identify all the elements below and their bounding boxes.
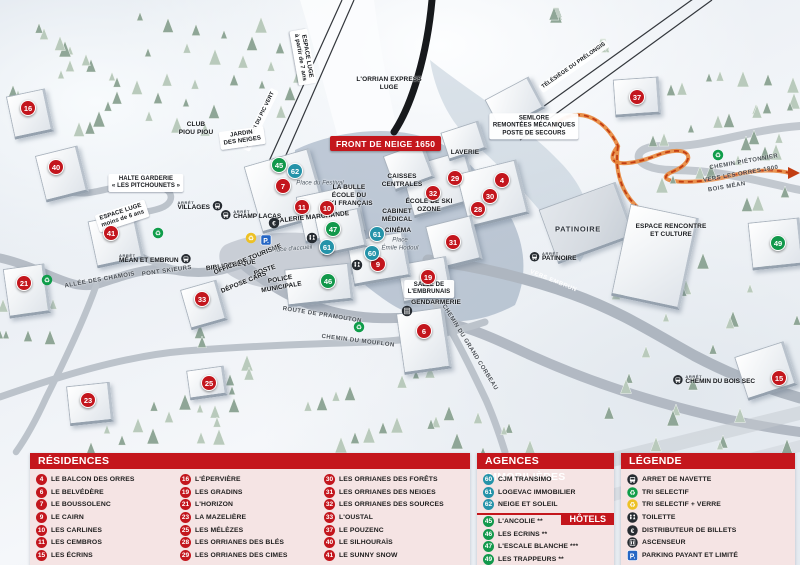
map-label: ESPACE RENCONTRE ET CULTURE — [636, 223, 707, 239]
legend-number-badge: 23 — [180, 512, 191, 523]
legend-number-badge: 47 — [483, 541, 494, 552]
map-marker-11: 11 — [294, 199, 310, 215]
legende-list: ARRET DE NAVETTE♻TRI SELECTIF♻TRI SELECT… — [621, 469, 795, 565]
legend-row: 15LES ÉCRINS — [36, 549, 176, 562]
recycle-yellow-icon: ♻ — [627, 499, 638, 510]
bus-stop-name: CHEMIN DU BOIS SEC — [685, 379, 755, 386]
legend-number-badge: 6 — [36, 487, 47, 498]
legend-label: LES TRAPPEURS ** — [498, 556, 564, 563]
legend-label: LES CARLINES — [51, 527, 102, 534]
legend-row: 11LES CEMBROS — [36, 536, 176, 549]
svg-text:♻: ♻ — [715, 151, 721, 159]
hotels-title: HÔTELS — [561, 513, 614, 525]
hotels-items: HÔTELS 45L'ANCOLIE **46LES ECRINS **47L'… — [477, 513, 614, 565]
map-marker-25: 25 — [201, 375, 217, 391]
legend-label: TRI SELECTIF + VERRE — [642, 501, 721, 508]
svg-text:P.: P. — [630, 553, 636, 560]
recycle-green-icon: ♻ — [354, 322, 365, 333]
bus-stop-patinoire: ARRÊTPATINOIRE — [530, 252, 577, 263]
residences-column: 16L'ÉPERVIÈRE19LES GRADINS21L'HORIZON23L… — [180, 473, 320, 562]
bus-icon — [181, 254, 191, 264]
map-marker-61: 61 — [369, 226, 385, 242]
legend-row: 4LE BALCON DES ORRES — [36, 473, 176, 486]
map-marker-40: 40 — [48, 159, 64, 175]
legend-row: 33L'OUSTAL — [324, 511, 464, 524]
residences-title: RÉSIDENCES — [30, 453, 470, 469]
legend-row: 61LOGEVAC IMMOBILIER — [483, 486, 608, 499]
svg-text:€: € — [272, 220, 276, 227]
map-marker-6: 6 — [416, 323, 432, 339]
map-marker-23: 23 — [80, 392, 96, 408]
bus-icon — [530, 252, 540, 262]
map-marker-47: 47 — [325, 221, 341, 237]
svg-text:P.: P. — [263, 238, 269, 245]
map-marker-10: 10 — [319, 200, 335, 216]
map-label: CINÉMA — [385, 227, 411, 235]
recycle-green-icon: ♻ — [42, 275, 53, 286]
legend-label: L'OUSTAL — [339, 514, 373, 521]
recycle-yellow-icon: ♻ — [246, 233, 257, 244]
bus-stop-name: VILLAGES — [177, 205, 210, 212]
legend-label: LES ECRINS ** — [498, 531, 547, 538]
legend-number-badge: 46 — [483, 529, 494, 540]
residences-panel: RÉSIDENCES 4LE BALCON DES ORRES6LE BELVÉ… — [30, 453, 470, 565]
legend-number-badge: 15 — [36, 550, 47, 561]
legend-row: 31LES ORRIANES DES NEIGES — [324, 486, 464, 499]
map-marker-49: 49 — [770, 235, 786, 251]
legend-label: LES ORRIANES DES BLÉS — [195, 539, 284, 546]
map-marker-4: 4 — [494, 172, 510, 188]
building — [3, 263, 52, 318]
agences-title: AGENCES IMMOBILIÈRES — [477, 453, 614, 469]
legend-row: ARRET DE NAVETTE — [627, 473, 789, 486]
map-marker-19: 19 — [420, 269, 436, 285]
agences-items: 60CJM TRANSIMO61LOGEVAC IMMOBILIER62NEIG… — [483, 473, 608, 511]
legend-number-badge: 7 — [36, 499, 47, 510]
parking-icon: P. — [627, 550, 638, 561]
legend-row: 23LA MAZELIÈRE — [180, 511, 320, 524]
legend-row: 62NEIGE ET SOLEIL — [483, 498, 608, 511]
legend-number-badge: 40 — [324, 537, 335, 548]
map-marker-62: 62 — [287, 163, 303, 179]
bus-icon — [221, 210, 231, 220]
map-marker-60: 60 — [364, 245, 380, 261]
bus-stop-name: MÉAN ET EMBRUN — [119, 258, 179, 265]
elevator-icon — [627, 537, 638, 548]
legend-label: LES ÉCRINS — [51, 552, 93, 559]
legend-label: LE SUNNY SNOW — [339, 552, 398, 559]
legend-label: CJM TRANSIMO — [498, 476, 552, 483]
legend-label: LE BELVÉDÈRE — [51, 489, 104, 496]
legend-row: 16L'ÉPERVIÈRE — [180, 473, 320, 486]
legend-number-badge: 33 — [324, 512, 335, 523]
legend-label: LE BALCON DES ORRES — [51, 476, 134, 483]
legend-label: NEIGE ET SOLEIL — [498, 501, 558, 508]
legend-label: LE CAIRN — [51, 514, 84, 521]
legend-row: P.PARKING PAYANT ET LIMITÉ — [627, 549, 789, 562]
legend-row: 25LES MÉLÈZES — [180, 524, 320, 537]
legend-number-badge: 41 — [324, 550, 335, 561]
legend-row: 29LES ORRIANES DES CIMES — [180, 549, 320, 562]
map-marker-32: 32 — [425, 185, 441, 201]
agences-panel: AGENCES IMMOBILIÈRES 60CJM TRANSIMO61LOG… — [477, 453, 614, 565]
legend-row: 28LES ORRIANES DES BLÉS — [180, 536, 320, 549]
legend-number-badge: 62 — [483, 499, 494, 510]
elevator-icon — [402, 306, 413, 317]
legend-label: LE POUZENC — [339, 527, 384, 534]
legend-number-badge: 21 — [180, 499, 191, 510]
legende-panel: LÉGENDE ARRET DE NAVETTE♻TRI SELECTIF♻TR… — [621, 453, 795, 565]
legend-number-badge: 9 — [36, 512, 47, 523]
atm-icon: € — [269, 218, 280, 229]
legend-label: L'ANCOLIE ** — [498, 518, 543, 525]
map-marker-16: 16 — [20, 100, 36, 116]
legend-row: €DISTRIBUTEUR DE BILLETS — [627, 524, 789, 537]
map-marker-33: 33 — [194, 291, 210, 307]
legend-label: L'ÉPERVIÈRE — [195, 476, 241, 483]
bus-stop-label: ARRÊTMÉAN ET EMBRUN — [119, 254, 179, 265]
map-label: LAVERIE — [451, 149, 479, 157]
map-label: HALTE GARDERIE « LES PITCHOUNETS » — [108, 174, 183, 192]
legend-number-badge: 11 — [36, 537, 47, 548]
map-label: SEMLORE REMONTÉES MÉCANIQUES POSTE DE SE… — [489, 113, 578, 139]
legend-label: LOGEVAC IMMOBILIER — [498, 489, 576, 496]
map-marker-46: 46 — [320, 273, 336, 289]
legend-row: 46LES ECRINS ** — [483, 528, 608, 541]
bus-icon — [673, 375, 683, 385]
legend-label: LES MÉLÈZES — [195, 527, 243, 534]
legend-label: PARKING PAYANT ET LIMITÉ — [642, 552, 738, 559]
legend-row: 9LE CAIRN — [36, 511, 176, 524]
bus-stop-label: ARRÊTVILLAGES — [177, 201, 210, 212]
map-label: CABINET MÉDICAL — [382, 208, 412, 224]
building — [396, 307, 452, 375]
map-marker-61: 61 — [319, 239, 335, 255]
recycle-green-icon: ♻ — [627, 487, 638, 498]
legend-label: LES ORRIANES DES FORÊTS — [339, 476, 438, 483]
front-de-neige-banner: FRONT DE NEIGE 1650 — [330, 136, 441, 151]
legend-number-badge: 19 — [180, 487, 191, 498]
legend-row: TOILETTE — [627, 511, 789, 524]
legend-number-badge: 31 — [324, 487, 335, 498]
legend-row: ♻TRI SELECTIF — [627, 486, 789, 499]
recycle-green-icon: ♻ — [713, 150, 724, 161]
svg-text:€: € — [631, 527, 635, 534]
legend-label: ARRET DE NAVETTE — [642, 476, 711, 483]
svg-text:♻: ♻ — [356, 323, 362, 331]
residences-column: 4LE BALCON DES ORRES6LE BELVÉDÈRE7LE BOU… — [36, 473, 176, 562]
legend-number-badge: 61 — [483, 487, 494, 498]
map-label: GENDARMERIE — [411, 299, 461, 307]
legend-label: TOILETTE — [642, 514, 676, 521]
legend-number-badge: 16 — [180, 474, 191, 485]
legend-row: 37LE POUZENC — [324, 524, 464, 537]
legend-label: ASCENSEUR — [642, 539, 686, 546]
map-marker-21: 21 — [16, 275, 32, 291]
bus-stop-m-an-et-embrun: ARRÊTMÉAN ET EMBRUN — [119, 254, 191, 265]
toilets-icon — [627, 512, 638, 523]
legend-label: LE SILHOURAÏS — [339, 539, 393, 546]
svg-text:♻: ♻ — [629, 488, 635, 496]
legend-row: 19LES GRADINS — [180, 486, 320, 499]
legend-row: 49LES TRAPPEURS ** — [483, 553, 608, 565]
bus-icon — [627, 474, 638, 485]
legend-number-badge: 28 — [180, 537, 191, 548]
legend-label: DISTRIBUTEUR DE BILLETS — [642, 527, 736, 534]
toilets-icon — [352, 260, 363, 271]
legend-label: LE BOUSSOLENC — [51, 501, 111, 508]
legend-label: LES CEMBROS — [51, 539, 102, 546]
map-label: Place Émile Hodoul — [382, 238, 419, 253]
legend-row: 6LE BELVÉDÈRE — [36, 486, 176, 499]
legend-label: L'HORIZON — [195, 501, 233, 508]
legend-row: ♻TRI SELECTIF + VERRE — [627, 498, 789, 511]
bus-stop-label: ARRÊTCHEMIN DU BOIS SEC — [685, 375, 755, 386]
legend-number-badge: 10 — [36, 525, 47, 536]
map-marker-41: 41 — [103, 225, 119, 241]
legend-row: 32LES ORRIANES DES SOURCES — [324, 498, 464, 511]
legend-label: LES GRADINS — [195, 489, 243, 496]
recycle-green-icon: ♻ — [153, 228, 164, 239]
legend-label: L'ESCALE BLANCHE *** — [498, 543, 578, 550]
bus-stop-chemin-du-bois-sec: ARRÊTCHEMIN DU BOIS SEC — [673, 375, 755, 386]
legend-row: 21L'HORIZON — [180, 498, 320, 511]
toilets-icon — [307, 233, 318, 244]
map-marker-30: 30 — [482, 188, 498, 204]
bus-stop-name: PATINOIRE — [542, 256, 576, 263]
legend-row: 10LES CARLINES — [36, 524, 176, 537]
legend-number-badge: 25 — [180, 525, 191, 536]
map-label: L'ORRIAN EXPRESS LUGE — [356, 76, 421, 92]
svg-text:♻: ♻ — [629, 501, 635, 509]
parking-icon: P. — [261, 235, 272, 246]
legend-row: 7LE BOUSSOLENC — [36, 498, 176, 511]
atm-icon: € — [627, 525, 638, 536]
bus-stop-villages: ARRÊTVILLAGES — [177, 201, 222, 212]
map-label: CAISSES CENTRALES — [382, 173, 423, 189]
map-label: CLUB PIOU PIOU — [179, 121, 214, 137]
svg-text:♻: ♻ — [248, 234, 254, 242]
legend-label: LES ORRIANES DES CIMES — [195, 552, 287, 559]
legend-row: 30LES ORRIANES DES FORÊTS — [324, 473, 464, 486]
legend-number-badge: 4 — [36, 474, 47, 485]
legend-row: 41LE SUNNY SNOW — [324, 549, 464, 562]
residences-column: 30LES ORRIANES DES FORÊTS31LES ORRIANES … — [324, 473, 464, 562]
legend-label: LA MAZELIÈRE — [195, 514, 246, 521]
map-marker-15: 15 — [771, 370, 787, 386]
legend-number-badge: 29 — [180, 550, 191, 561]
legende-title: LÉGENDE — [621, 453, 795, 469]
legend-row: ASCENSEUR — [627, 536, 789, 549]
resort-map: ESPACE LUGE à partir de 7 ansTÉLÉSKI DU … — [0, 0, 800, 565]
map-marker-45: 45 — [271, 157, 287, 173]
map-marker-37: 37 — [629, 89, 645, 105]
map-label: PATINOIRE — [555, 224, 601, 233]
bus-stop-label: ARRÊTPATINOIRE — [542, 252, 576, 263]
legend-label: LES ORRIANES DES NEIGES — [339, 489, 436, 496]
legend-row: 47L'ESCALE BLANCHE *** — [483, 540, 608, 553]
legend-number-badge: 32 — [324, 499, 335, 510]
svg-text:♻: ♻ — [155, 229, 161, 237]
legend-number-badge: 30 — [324, 474, 335, 485]
legend-number-badge: 49 — [483, 554, 494, 565]
residences-list: 4LE BALCON DES ORRES6LE BELVÉDÈRE7LE BOU… — [30, 469, 470, 565]
legend-number-badge: 37 — [324, 525, 335, 536]
legend-label: LES ORRIANES DES SOURCES — [339, 501, 444, 508]
map-marker-31: 31 — [445, 234, 461, 250]
map-marker-7: 7 — [275, 178, 291, 194]
legend-row: 40LE SILHOURAÏS — [324, 536, 464, 549]
legend-number-badge: 45 — [483, 516, 494, 527]
map-marker-29: 29 — [447, 170, 463, 186]
legend-label: TRI SELECTIF — [642, 489, 689, 496]
map-marker-28: 28 — [470, 201, 486, 217]
svg-text:♻: ♻ — [44, 276, 50, 284]
legend-number-badge: 60 — [483, 474, 494, 485]
